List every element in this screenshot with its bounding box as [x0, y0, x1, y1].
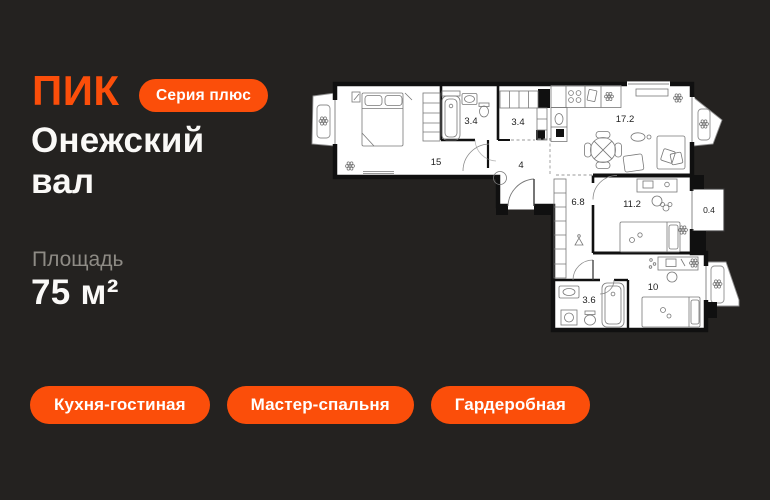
promo-card: ПИК Серия плюс Онежский вал Площадь 75 м… [0, 0, 770, 500]
area-label: Площадь [32, 248, 123, 272]
room-area-balcony: 0.4 [703, 205, 715, 215]
tag-master-bedroom[interactable]: Мастер-спальня [227, 386, 414, 424]
tag-kitchen-living[interactable]: Кухня-гостиная [30, 386, 210, 424]
area-value: 75 м² [31, 273, 119, 313]
tag-wardrobe[interactable]: Гардеробная [431, 386, 590, 424]
project-title-line2: вал [31, 162, 204, 203]
room-area-bedroom-2: 11.2 [623, 199, 641, 210]
project-title: Онежский вал [31, 121, 204, 203]
floor-plan: 15 3.4 3.4 17.2 4 6.8 11.2 0.4 3.6 10 [310, 80, 742, 342]
room-area-hallway: 4 [518, 160, 523, 171]
room-area-wardrobe-room: 3.4 [511, 117, 524, 128]
series-badge: Серия плюс [139, 79, 268, 112]
room-tags: Кухня-гостиная Мастер-спальня Гардеробна… [30, 386, 590, 424]
room-area-corridor: 6.8 [571, 197, 584, 208]
room-area-master-bedroom: 15 [431, 157, 442, 168]
series-badge-label: Серия плюс [156, 87, 251, 105]
room-area-kitchen-living: 17.2 [616, 114, 635, 125]
balcony-top-right [693, 97, 722, 146]
pik-logo: ПИК [32, 70, 120, 112]
tag-wardrobe-label: Гардеробная [455, 395, 566, 415]
room-area-bedroom-3: 10 [648, 282, 659, 293]
floor-plan-svg: 15 3.4 3.4 17.2 4 6.8 11.2 0.4 3.6 10 [310, 80, 742, 342]
tag-master-bedroom-label: Мастер-спальня [251, 395, 390, 415]
tag-kitchen-living-label: Кухня-гостиная [54, 395, 186, 415]
room-area-bathroom-1: 3.4 [464, 116, 477, 127]
room-area-bathroom-2: 3.6 [582, 295, 595, 306]
project-title-line1: Онежский [31, 121, 204, 162]
balcony-bottom-right [707, 262, 739, 306]
